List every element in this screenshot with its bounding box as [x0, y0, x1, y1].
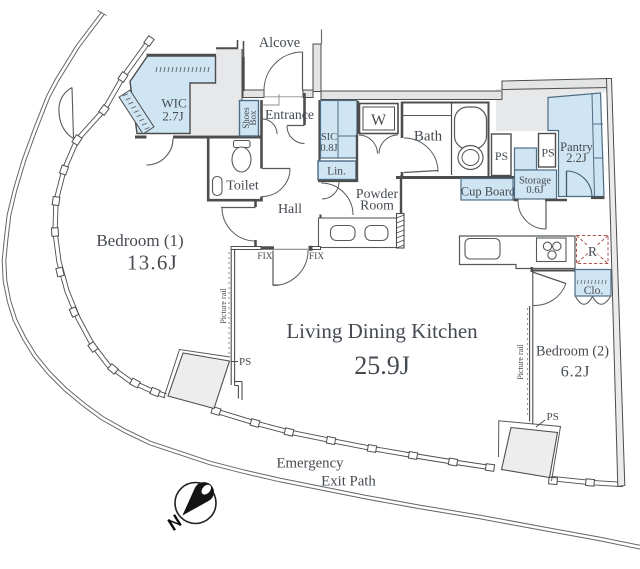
- svg-text:Clo.: Clo.: [584, 285, 604, 297]
- svg-text:0.8J: 0.8J: [320, 143, 337, 154]
- svg-text:Room: Room: [360, 198, 394, 213]
- svg-text:Picture rail: Picture rail: [219, 288, 228, 324]
- svg-text:6.2J: 6.2J: [561, 364, 590, 381]
- svg-text:Alcove: Alcove: [259, 35, 300, 51]
- svg-text:PS: PS: [239, 356, 251, 368]
- svg-text:25.9J: 25.9J: [354, 351, 410, 380]
- svg-text:Living Dining Kitchen: Living Dining Kitchen: [286, 319, 478, 343]
- svg-text:Bedroom (2): Bedroom (2): [536, 344, 609, 360]
- svg-text:13.6J: 13.6J: [127, 251, 178, 275]
- svg-text:SIC: SIC: [321, 132, 337, 143]
- svg-text:R: R: [588, 244, 597, 259]
- svg-text:0.6J: 0.6J: [526, 185, 543, 196]
- svg-text:Bath: Bath: [414, 129, 443, 145]
- svg-text:Emergency: Emergency: [276, 456, 344, 472]
- svg-text:Exit Path: Exit Path: [321, 474, 376, 490]
- svg-text:Cup Board: Cup Board: [461, 185, 516, 199]
- svg-text:PS: PS: [541, 146, 554, 160]
- svg-text:Toilet: Toilet: [226, 179, 259, 194]
- svg-text:2.7J: 2.7J: [162, 109, 183, 124]
- svg-text:PS: PS: [495, 149, 508, 163]
- svg-text:Entrance: Entrance: [265, 107, 314, 122]
- svg-text:2.2J: 2.2J: [566, 151, 587, 165]
- svg-text:FIX: FIX: [309, 252, 324, 262]
- svg-text:FIX: FIX: [257, 252, 272, 262]
- svg-text:PS: PS: [547, 411, 559, 423]
- svg-text:Box: Box: [248, 110, 258, 126]
- svg-text:Bedroom (1): Bedroom (1): [96, 231, 183, 250]
- svg-text:Lin.: Lin.: [327, 166, 346, 178]
- svg-text:Picture rail: Picture rail: [516, 344, 525, 380]
- svg-text:Hall: Hall: [278, 202, 302, 217]
- svg-text:W: W: [371, 112, 387, 129]
